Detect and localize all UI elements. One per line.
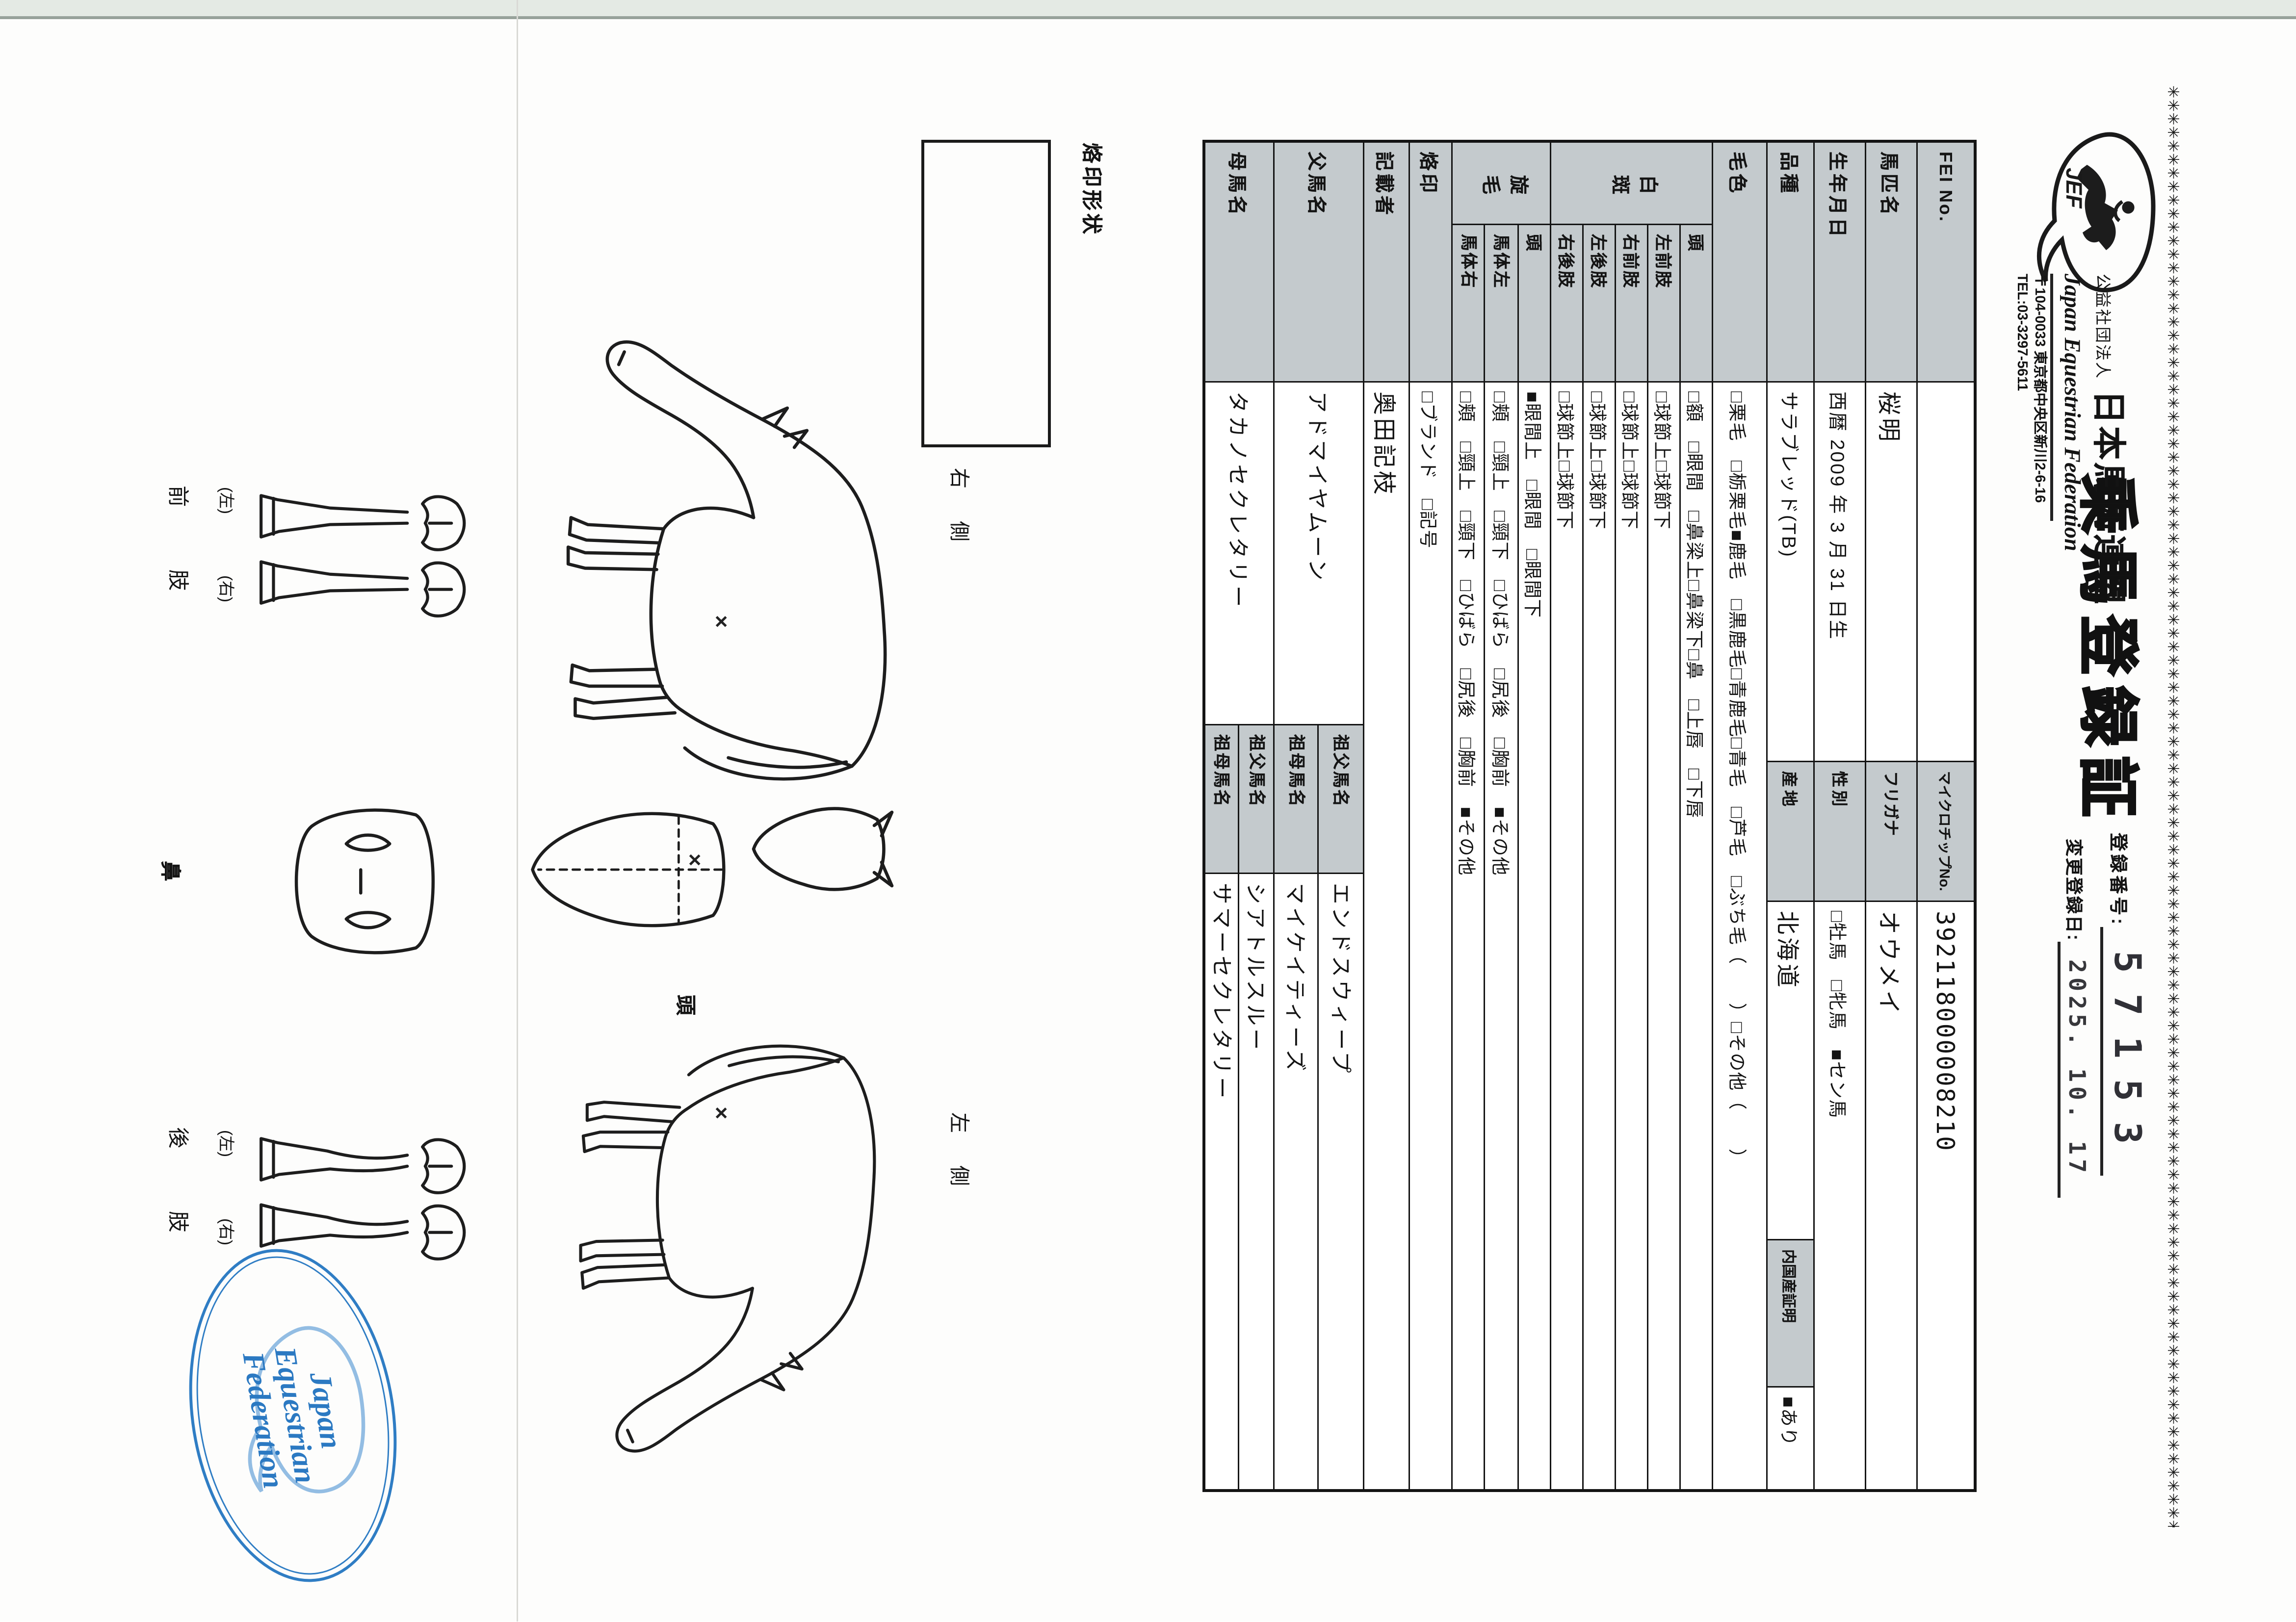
dam-granddam-row: 祖母馬名 サマーセクレタリー xyxy=(1205,725,1240,1489)
table-row-birth: 生年月日 西暦 2009 年 3 月 31 日生 性別 □牡馬 □牝馬 ■セン馬 xyxy=(1815,143,1866,1489)
white-markings-head-row: 頭 □額 □眼間 □鼻梁上□鼻梁下□鼻 □上唇 □下唇 xyxy=(1681,224,1712,1489)
hind-left-paren: (左) xyxy=(215,1130,238,1157)
birthdate-value: 西暦 2009 年 3 月 31 日生 xyxy=(1815,381,1865,761)
sex-value: □牡馬 □牝馬 ■セン馬 xyxy=(1815,901,1865,1489)
sire-grandsire-row: 祖父馬名 エンドスウィープ xyxy=(1320,725,1363,1489)
white-markings-lf-row: 左前肢 □球節上□球節下 xyxy=(1648,224,1681,1489)
furigana-label: フリガナ xyxy=(1866,761,1916,901)
hind-right-paren: (右) xyxy=(215,1218,238,1245)
table-row-dam: 母馬名 タカノセクレタリー 祖父馬名 シアトルスルー 祖母馬名 サマーセクレタリ… xyxy=(1205,143,1275,1489)
certificate-sheet: ✳✳✳✳✳✳✳✳✳✳✳✳✳✳✳✳✳✳✳✳✳✳✳✳✳✳✳✳✳✳✳✳✳✳✳✳✳✳✳✳… xyxy=(0,0,2296,1622)
branding-shape-label: 烙印形状 xyxy=(1077,143,1107,237)
white-markings-rf-row: 右前肢 □球節上□球節下 xyxy=(1616,224,1648,1489)
wm-head-label: 頭 xyxy=(1681,224,1712,381)
origin-value: 北海道 xyxy=(1768,901,1813,1239)
horse-head-front-figure xyxy=(748,789,895,909)
horse-right-side-figure xyxy=(539,253,939,830)
whorl-head-value: ■眼間上 □眼間 □眼間下 xyxy=(1518,381,1550,1489)
sire-grandsire-label: 祖父馬名 xyxy=(1320,725,1363,873)
asterisk-border: ✳✳✳✳✳✳✳✳✳✳✳✳✳✳✳✳✳✳✳✳✳✳✳✳✳✳✳✳✳✳✳✳✳✳✳✳✳✳✳✳… xyxy=(2158,85,2181,1527)
domestic-cert-label: 内国産証明 xyxy=(1768,1239,1813,1386)
whorl-body-left-label: 馬体左 xyxy=(1486,224,1517,381)
white-markings-rh-row: 右後肢 □球節上□球節下 xyxy=(1551,224,1584,1489)
whorls-group-label: 旋毛 xyxy=(1453,143,1550,224)
change-date: 2025. 10. 17 xyxy=(2058,942,2090,1198)
coat-color-label: 毛色 xyxy=(1713,143,1766,381)
logo-jef-text: JEF xyxy=(2061,168,2087,209)
wm-rh-label: 右後肢 xyxy=(1551,224,1582,381)
whorl-body-right-row: 馬体右 □頬 □頸上 □頸下 □ひばら □尻後 □胸前 ■その他 xyxy=(1453,224,1486,1489)
wm-rf-label: 右前肢 xyxy=(1616,224,1647,381)
brand-value: □ブランド □記号 xyxy=(1410,381,1451,1489)
horse-name-value: 桜明 xyxy=(1866,381,1916,761)
horse-name-label: 馬匹名 xyxy=(1866,143,1916,381)
brand-label: 烙印 xyxy=(1410,143,1451,381)
whorl-body-right-label: 馬体右 xyxy=(1453,224,1484,381)
registration-number-label: 登録番号: xyxy=(2100,833,2134,927)
sire-value: アドマイヤムーン xyxy=(1275,381,1363,724)
coat-color-value: □栗毛 □栃栗毛■鹿毛 □黒鹿毛□青鹿毛□青毛 □芦毛 □ぶち毛（ ）□その他（… xyxy=(1713,381,1766,1489)
sire-granddam-value: マイケイティーズ xyxy=(1275,873,1318,1489)
left-side-label: 左 側 xyxy=(945,1112,974,1192)
head-label: 頭 xyxy=(671,995,701,1015)
front-limbs-figure xyxy=(247,478,468,637)
birthdate-label: 生年月日 xyxy=(1815,143,1865,381)
horse-left-side-figure xyxy=(542,1012,936,1520)
dam-grandsire-value: シアトルスルー xyxy=(1240,873,1274,1489)
dam-granddam-label: 祖母馬名 xyxy=(1205,725,1239,873)
wm-rf-value: □球節上□球節下 xyxy=(1616,381,1647,1489)
dam-granddam-value: サマーセクレタリー xyxy=(1205,873,1239,1489)
domestic-cert-value: ■あり xyxy=(1768,1386,1813,1489)
hind-limb-label: 後 肢 xyxy=(163,1127,194,1253)
stamp-text: Japan Equestrian Federation xyxy=(166,1234,419,1597)
dam-grandsire-label: 祖父馬名 xyxy=(1240,725,1274,873)
whorl-head-label: 頭 xyxy=(1518,224,1550,381)
furigana-value: オウメイ xyxy=(1866,901,1916,1489)
front-left-paren: (左) xyxy=(215,487,238,514)
whorl-body-right-value: □頬 □頸上 □頸下 □ひばら □尻後 □胸前 ■その他 xyxy=(1453,381,1484,1489)
change-date-label: 変更登録日: xyxy=(2058,839,2087,942)
table-row-name: 馬匹名 桜明 フリガナ オウメイ xyxy=(1866,143,1918,1489)
front-limb-label: 前 肢 xyxy=(163,486,194,612)
org-type: 公益社団法人 xyxy=(2093,274,2111,380)
table-group-white-markings: 白斑 頭 □額 □眼間 □鼻梁上□鼻梁下□鼻 □上唇 □下唇 左前肢 □球節上□… xyxy=(1551,143,1713,1489)
scanner-edge-band xyxy=(0,0,2296,19)
scanned-certificate: ✳✳✳✳✳✳✳✳✳✳✳✳✳✳✳✳✳✳✳✳✳✳✳✳✳✳✳✳✳✳✳✳✳✳✳✳✳✳✳✳… xyxy=(0,0,2296,1622)
scan-artifact-line xyxy=(517,0,518,1622)
table-group-whorls: 旋毛 頭 ■眼間上 □眼間 □眼間下 馬体左 □頬 □頸上 □頸下 □ひばら □… xyxy=(1453,143,1551,1489)
white-markings-group-label: 白斑 xyxy=(1551,143,1712,224)
sex-label: 性別 xyxy=(1815,761,1865,901)
whorl-head-row: 頭 ■眼間上 □眼間 □眼間下 xyxy=(1518,224,1550,1489)
whorl-mark-right-horse: × xyxy=(708,615,733,628)
horse-data-table: FEI No. マイクロチップNo. 392118000008210 馬匹名 桜… xyxy=(1202,140,1977,1492)
front-right-paren: (右) xyxy=(215,575,238,602)
right-side-label: 右 側 xyxy=(945,468,974,547)
fei-no-value xyxy=(1918,381,1974,761)
wm-rh-value: □球節上□球節下 xyxy=(1551,381,1582,1489)
table-row-fei: FEI No. マイクロチップNo. 392118000008210 xyxy=(1918,143,1974,1489)
federation-stamp: Japan Equestrian Federation xyxy=(166,1234,419,1597)
dam-label: 母馬名 xyxy=(1205,143,1273,381)
branding-shape-box xyxy=(921,140,1051,447)
wm-lf-label: 左前肢 xyxy=(1648,224,1679,381)
microchip-value: 392118000008210 xyxy=(1918,901,1974,1489)
wm-lh-label: 左後肢 xyxy=(1584,224,1615,381)
dam-grandsire-row: 祖父馬名 シアトルスルー xyxy=(1240,725,1274,1489)
table-row-recorder: 記載者 奥田記枝 xyxy=(1364,143,1410,1489)
horse-muzzle-figure xyxy=(283,795,456,968)
breed-value: サラブレッド(TB) xyxy=(1768,381,1813,761)
wm-lf-value: □球節上□球節下 xyxy=(1648,381,1679,1489)
table-row-sire: 父馬名 アドマイヤムーン 祖父馬名 エンドスウィープ 祖母馬名 マイケイティーズ xyxy=(1275,143,1364,1489)
whorl-body-left-row: 馬体左 □頬 □頸上 □頸下 □ひばら □尻後 □胸前 ■その他 xyxy=(1486,224,1518,1489)
whorl-mark-left-horse: × xyxy=(708,1107,733,1119)
sire-granddam-row: 祖母馬名 マイケイティーズ xyxy=(1275,725,1320,1489)
whorl-body-left-value: □頬 □頸上 □頸下 □ひばら □尻後 □胸前 ■その他 xyxy=(1486,381,1517,1489)
breed-label: 品種 xyxy=(1768,143,1813,381)
table-row-brand: 烙印 □ブランド □記号 xyxy=(1410,143,1453,1489)
horse-head-reference-figure xyxy=(524,795,739,945)
dam-value: タカノセクレタリー xyxy=(1205,381,1273,724)
wm-head-value: □額 □眼間 □鼻梁上□鼻梁下□鼻 □上唇 □下唇 xyxy=(1681,381,1712,1489)
sire-label: 父馬名 xyxy=(1275,143,1363,381)
wm-lh-value: □球節上□球節下 xyxy=(1584,381,1615,1489)
table-row-coat: 毛色 □栗毛 □栃栗毛■鹿毛 □黒鹿毛□青鹿毛□青毛 □芦毛 □ぶち毛（ ）□そ… xyxy=(1713,143,1768,1489)
fei-no-label: FEI No. xyxy=(1918,143,1974,381)
certificate-title: 乗馬登録証 xyxy=(2069,474,2158,827)
white-markings-lh-row: 左後肢 □球節上□球節下 xyxy=(1584,224,1616,1489)
registration-number: 57153 xyxy=(2100,927,2149,1177)
recorder-label: 記載者 xyxy=(1364,143,1409,381)
org-address: 〒104-0033 東京都中央区新川2-6-16 xyxy=(2030,274,2047,521)
microchip-label: マイクロチップNo. xyxy=(1918,761,1974,901)
recorder-value: 奥田記枝 xyxy=(1364,381,1409,1489)
sire-granddam-label: 祖母馬名 xyxy=(1275,725,1318,873)
origin-label: 産地 xyxy=(1768,761,1813,901)
nose-label: 鼻 xyxy=(156,861,185,881)
sire-grandsire-value: エンドスウィープ xyxy=(1320,873,1363,1489)
registration-block: 登録番号: 57153 変更登録日: 2025. 10. 17 xyxy=(2058,833,2149,1524)
table-row-breed: 品種 サラブレッド(TB) 産地 北海道 内国産証明 ■あり xyxy=(1768,143,1815,1489)
org-tel: TEL:03-3297-5611 xyxy=(2012,274,2030,521)
